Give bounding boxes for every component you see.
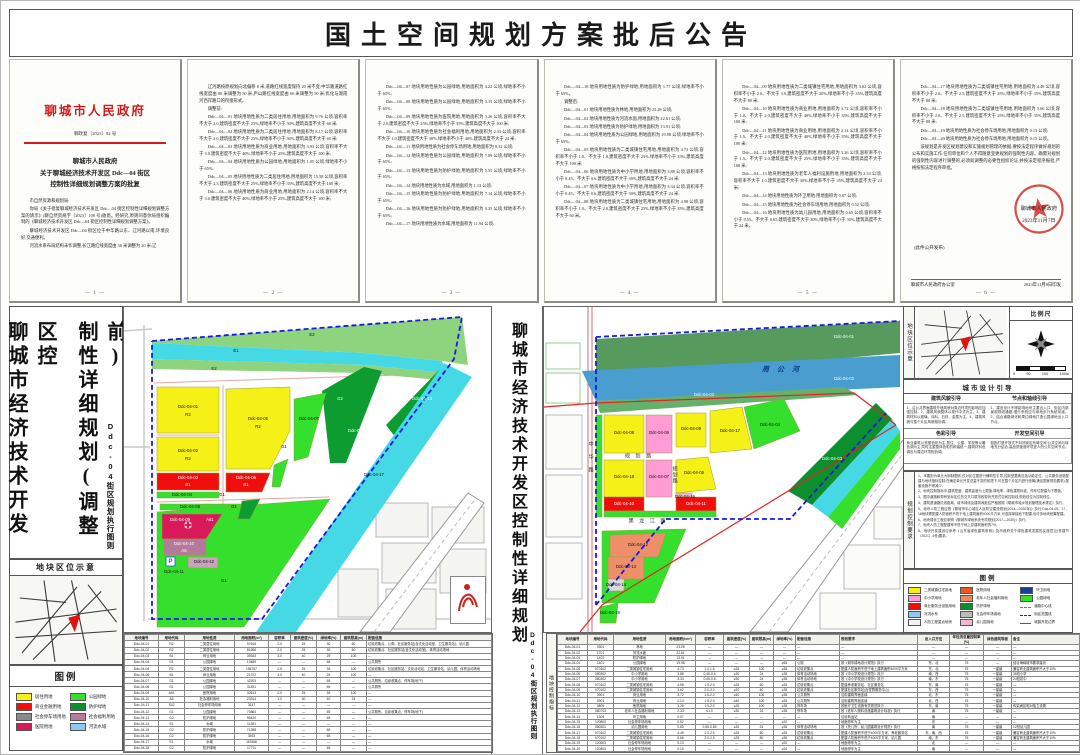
- table-row: Ddc-04-18G2防护绿地17711——65——: [125, 745, 492, 751]
- legend-swatch: [908, 595, 921, 602]
- doc-paragraph: Ddc—04—12 地块用地性质为医院用地,用地面积为 3.26 公顷,容积率不…: [734, 150, 882, 170]
- legend-swatch: [70, 693, 86, 701]
- letterhead-rule: [24, 142, 166, 144]
- scale-tick-label: 0: [1013, 372, 1015, 376]
- legend-label: 公园绿地: [89, 694, 107, 700]
- parcel-table-after: 地块控制指标 地块编号用地代码用地性质用地面积(hm²)容积率建筑密度(%)建筑…: [546, 633, 1080, 753]
- control-requirements-label: 规划控制要求: [904, 472, 915, 568]
- doc-paragraph: Ddc—04—15 地块用地性质为防护绿地,用地面积为 7.14 公顷,绿地率不…: [377, 191, 525, 205]
- legend-swatch: [960, 603, 973, 610]
- doc-paragraph: 河流水系布局结构未作调整,长江路红线宽度由 36 米调整为 20 米;辽: [21, 243, 169, 250]
- announcement-poster: 国土空间规划方案批后公告 聊城市人民政府 聊政复〔2023〕82 号 聊城市人民…: [0, 0, 1080, 755]
- map-title-before-col1: 聊城市经济技术开发区控: [2, 321, 60, 558]
- right-legend-box: 图例 二类城镇住宅用地 医院用地 环卫用地: [903, 569, 1073, 633]
- doc-paragraph: 聊城经济技术开发区 Ddc—04 街区位于中华路以东、辽河路以南,环境良好,交通…: [21, 228, 169, 242]
- document-pages: 聊城市人民政府 聊政复〔2023〕82 号 聊城市人民政府 关于聊城经济技术开发…: [9, 59, 1073, 303]
- control-requirements-box: 规划控制要求 1、本图则为单元大纲制图则,仅对区位图进行辅助性引导,控制型要素包…: [903, 471, 1073, 569]
- legend-swatch: [1020, 607, 1031, 608]
- design-section-title: 建筑风貌引导: [904, 394, 988, 404]
- legend-swatch: [908, 619, 921, 626]
- legend-item: 社会停车场用地: [960, 611, 1018, 618]
- design-section-title: 开发空间引导: [988, 429, 1071, 439]
- legend-item: 公园绿地: [70, 693, 116, 701]
- scale-bar: [1016, 366, 1066, 371]
- control-requirement-item: 2、地块控制指标中,建筑密度、建筑高度为上限值,绿地率、绿色建筑标准、停车位配建…: [918, 489, 1069, 494]
- legend-label: 社会停车场用地: [976, 612, 1001, 617]
- zoning-map-before-drawing: [124, 307, 492, 632]
- page-number: — 3 —: [366, 291, 536, 296]
- doc-paragraph: 调整前:: [199, 106, 347, 113]
- doc-paragraph: Ddc—04—08 地块用地性质为二类城镇住宅用地,用地面积为 4.98 公顷,…: [556, 199, 704, 219]
- table-cell: —: [367, 745, 492, 751]
- table-cell: 南: [918, 746, 950, 752]
- doc-number: 聊政复〔2023〕82 号: [21, 131, 169, 137]
- design-section-title: 节点和轴线引导: [988, 394, 1071, 404]
- table-cell: 17711: [235, 745, 269, 751]
- doc-body: 辽河路按原规划向北偏移 8 米,道路红线宽度保持 20 米不变;中华路道路红线宽…: [199, 84, 347, 203]
- doc-paragraph: Ddc—04—19 地块用地性质为社会停车场用地,用地面积为 0.13 公顷;: [912, 128, 1060, 135]
- doc-paragraph: 你局《关于批复聊城经济技术开发区 Ddc—04 街区控制性详细规划调整方案的请示…: [21, 206, 169, 226]
- table-cell: —: [984, 746, 1012, 752]
- doc-paragraph: Ddc—04—06 地块用地性质为商业用地,用地面积为 2.14 公顷,容积率不…: [199, 189, 347, 203]
- legend-item: 中小学用地: [908, 595, 958, 602]
- legend-item: 医院用地: [960, 587, 1018, 594]
- legend-label: 防护绿地: [976, 604, 990, 609]
- left-locator-box: 地块区位示意: [9, 559, 123, 665]
- right-locator-box: 地块区位示意 比例尺 050100150m: [903, 306, 1073, 379]
- legend-label: 人防工程重点地块: [924, 620, 952, 625]
- table-cell: 社会停车场用地: [614, 746, 666, 752]
- doc-paragraph: Ddc—04—07 地块用地性质为公园绿地,用地面积为 4.22 公顷,绿地率不…: [377, 84, 525, 98]
- legend-swatch: [960, 611, 973, 618]
- legend-label: 居住用地: [35, 694, 53, 700]
- legend-item: 防护绿地: [960, 603, 1018, 610]
- design-section-body: 鼓励打造开放式不封闭街区布局空间,公共空间与绿地充分结合,高品质营造环境宜人的公…: [988, 439, 1071, 452]
- doc-paragraph: Ddc—04—18 地块用地性质为二类城镇住宅用地,用地面积为 5.66 公顷,…: [912, 106, 1060, 126]
- doc-paragraph: 辽河路按原规划向北偏移 8 米,道路红线宽度保持 20 米不变;中华路道路红线宽…: [199, 84, 347, 104]
- design-section: 节点和轴线引导 1、建设设计不得影响地块主要出入口、街区内部景观视线通廊,慢行系…: [988, 394, 1072, 429]
- table-row: 地块编号用地代码用地性质用地面积(hm²)容积率建筑密度(%)建筑限高(m)绿地…: [558, 635, 1080, 645]
- table-cell: 配建人防面积不低于4000平方米、养老服务站: [840, 730, 918, 735]
- legend-swatch: [16, 723, 32, 731]
- table-cell: 出入口方位: [918, 635, 950, 645]
- legend-item: 居住用地: [16, 693, 66, 701]
- doc-paragraph: Ddc—04—11 地块用地性质为社会停车场用地,用地面积为 0.32 公顷;: [377, 144, 525, 151]
- doc-paragraph: Ddc—04—16 地块用地性质为幼儿园用地,用地面积为 0.65 公顷,容积率…: [734, 210, 882, 230]
- control-requirement-item: 6、地块绿化工程应参照《聊城市绿地系统专项规划(2017—2030)》执行。: [918, 518, 1069, 523]
- left-legend-box: 图例 居住用地 公园绿地 商业金融用地: [9, 665, 123, 751]
- locator-minimap: [915, 307, 1010, 378]
- doc-page-3: Ddc—04—07 地块用地性质为公园绿地,用地面积为 4.22 公顷,绿地率不…: [365, 59, 538, 303]
- legend-swatch: [960, 595, 973, 602]
- doc-body: Ddc—04—07 地块用地性质为公园绿地,用地面积为 4.22 公顷,绿地率不…: [377, 84, 525, 228]
- legend-label: 社会停车场用地: [35, 714, 66, 720]
- legend-item: 二类城镇住宅用地: [908, 587, 958, 594]
- control-requirement-item: 4、建筑退道路红线距离、城市绿线及建筑间距应严格按照《聊城市城乡规划管理技术规定…: [918, 501, 1069, 506]
- legend-item: 商业服务业设施用地: [908, 603, 958, 610]
- doc-paragraph: Ddc—04—17 地块用地性质为二类城镇住宅用地,用地面积为 4.49 公顷,…: [912, 84, 1060, 104]
- table-cell: 120803: [588, 746, 614, 752]
- doc-paragraph: Ddc—04—02 地块用地性质为河流水面,用地面积为 22.61 公顷;: [556, 116, 704, 123]
- legend-swatch: [908, 611, 921, 618]
- doc-paragraph: Ddc—04—13 地块用地性质为老年人福利设施用地,用地面积为 2.33 公顷…: [734, 171, 882, 191]
- control-requirement-item: 7、地块人防工程配建率不低于地上总建筑面积的7%。: [918, 523, 1069, 528]
- map-emblem: [450, 576, 486, 624]
- page-number: — 4 —: [545, 291, 715, 296]
- legend-label: 环卫用地: [1036, 588, 1050, 593]
- legend-swatch: [1020, 587, 1033, 594]
- design-sections: 建筑风貌引导 1、沿公共界面建筑外墙风貌对周边环境的影响应加强控制。2、建筑风貌…: [904, 394, 1072, 464]
- scale-labels: 050100150m: [1013, 372, 1069, 376]
- table-cell: 容积率: [696, 635, 724, 645]
- doc-paragraph: Ddc—04—06 地块用地性质为中小学用地,用地面积为 3.88 公顷,容积率…: [556, 169, 704, 183]
- table-cell: 建筑密度(%): [724, 635, 750, 645]
- scale-tick-label: 150m: [1060, 372, 1070, 376]
- legend-label: 城镇开发边界: [1034, 620, 1055, 625]
- legend-item: 社会停车场用地: [16, 713, 66, 721]
- legend-item: 幼儿园用地: [960, 619, 1018, 626]
- table-cell: 防护绿地: [185, 745, 235, 751]
- map-title-before-col2: 制性详细规划(调整前): [72, 321, 130, 558]
- legend-swatch: [16, 703, 32, 711]
- legend-label: 中小学用地: [924, 596, 942, 601]
- table-cell: 绿地率(%): [774, 635, 796, 645]
- doc-body: Ddc—04—17 地块用地性质为二类城镇住宅用地,用地面积为 4.49 公顷,…: [912, 84, 1060, 171]
- table-cell: —: [950, 746, 984, 752]
- design-section-body: 1、建设设计不得影响地块主要出入口、街区内部景观视线通廊,慢行系统应与绿地步行系…: [988, 404, 1071, 427]
- table-cell: 地面停车为主: [840, 746, 918, 752]
- legend-swatch: [908, 603, 921, 610]
- table-cell: 用地面积(hm²): [666, 635, 696, 645]
- doc-paragraph: Ddc—04—03 地块用地性质为商业用地,用地面积为 3.93 公顷,容积率不…: [199, 144, 347, 158]
- legend-label: 河流水系: [924, 612, 938, 617]
- legend-title: 图例: [10, 666, 122, 687]
- page-number: — 6 —: [901, 291, 1071, 296]
- scale-tick-label: 50: [1026, 372, 1030, 376]
- signature-block: 聊城市人民政府 2023年11月7日: [1021, 204, 1057, 227]
- doc-page-6: Ddc—04—17 地块用地性质为二类城镇住宅用地,用地面积为 4.49 公顷,…: [900, 59, 1073, 303]
- map-subtitle-after: Ddc-04街区规划执行图则: [527, 632, 537, 740]
- legend-item: 公园绿地: [1020, 595, 1068, 602]
- legend-label: 二类城镇住宅用地: [924, 588, 952, 593]
- doc-page-1: 聊城市人民政府 聊政复〔2023〕82 号 聊城市人民政府 关于聊城经济技术开发…: [9, 59, 182, 303]
- legend-label: 河流水域: [89, 724, 107, 730]
- locator-minimap: [10, 576, 122, 664]
- legend-item: 社会福利用地: [70, 713, 116, 721]
- doc-paragraph: 市自然资源和规划局:: [21, 198, 169, 205]
- table-cell: —: [291, 745, 317, 751]
- table-cell: —: [696, 746, 724, 752]
- table-cell: 用地代码: [588, 635, 614, 645]
- doc-paragraph: Ddc—04—09 地块用地性质为二类城镇住宅用地,用地面积为 3.62 公顷,…: [734, 84, 882, 104]
- legend-swatch: [1020, 623, 1031, 624]
- agency-letterhead: 聊城市人民政府: [21, 100, 169, 119]
- page-number: — 2 —: [188, 291, 358, 296]
- table-cell: 规划要求: [840, 635, 918, 645]
- legend-items: 二类城镇住宅用地 医院用地 环卫用地 中小学用地: [904, 584, 1072, 629]
- legend-swatch: [16, 713, 32, 721]
- legend-swatch: [1020, 595, 1033, 602]
- control-requirements-list: 1、本图则为单元大纲制图则,仅对区位图进行辅助性引导,控制型要素包括功能定位、公…: [915, 472, 1072, 568]
- legend-swatch: [1020, 615, 1031, 616]
- doc-paragraph: Ddc—04—17 地块用地性质为水域,用地面积为 11.94 公顷;: [377, 221, 525, 228]
- legend-label: 社会福利用地: [89, 714, 115, 720]
- doc-body: Ddc—04—09 地块用地性质为二类城镇住宅用地,用地面积为 3.62 公顷,…: [734, 84, 882, 230]
- control-requirement-item: 1、本图则为单元大纲制图则,仅对区位图进行辅助性引导,控制型要素包括功能定位、公…: [918, 474, 1069, 488]
- table-cell: 年径流总量控制率(%): [950, 635, 984, 645]
- legend-swatch: [70, 723, 86, 731]
- page-title: 国土空间规划方案批后公告: [325, 15, 757, 52]
- map-subtitle-before: Ddc-04街区规划执行图则: [105, 422, 116, 550]
- legend-swatch: [960, 619, 973, 626]
- table-cell: —: [341, 745, 367, 751]
- map-title-after: 聊城市经济技术开发区控制性详细规划: [505, 322, 529, 754]
- legend-label: 医院用地: [35, 724, 53, 730]
- compass-rose-icon: [1010, 321, 1072, 366]
- doc-paragraph: Ddc—04—14 地块用地性质为水域,用地面积为 1.13 公顷;: [377, 183, 525, 190]
- doc-paragraph: Ddc—04—03 地块用地性质为防护绿地,用地面积为 13.91 公顷;: [556, 124, 704, 131]
- legend-item: 街区范围线: [1020, 611, 1068, 618]
- table-cell: Ddc-04-20: [558, 746, 588, 752]
- doc-body: Ddc—04—18 地块用地性质为防护绿地,用地面积为 1.77 公顷,绿地率不…: [556, 84, 704, 220]
- doc-paragraph: Ddc—04—10 地块用地性质为商业用地,用地面积为 3.72 公顷,容积率不…: [734, 106, 882, 126]
- legend-swatch: [70, 713, 86, 721]
- legend-item: 河流水系: [908, 611, 958, 618]
- table-cell: —: [796, 746, 840, 752]
- scale-box: 比例尺 050100150m: [1010, 307, 1072, 378]
- publish-note: (此件公开发布): [914, 245, 945, 251]
- legend-label: 医院用地: [976, 588, 990, 593]
- control-requirement-item: 8、地块开发建设应参考《山东省绿色建筑条例》及市政府关于绿色建筑发展的实施意见(…: [918, 529, 1069, 539]
- doc-paragraph: Ddc—04—01 地块用地性质为林地,用地面积为 23.28 公顷;: [556, 107, 704, 114]
- doc-paragraph: Ddc—04—15 地块用地性质为社会停车场用地,用地面积为 0.52 公顷;: [734, 202, 882, 209]
- doc-paragraph: Ddc—04—18 地块用地性质为防护绿地,用地面积为 1.77 公顷,绿地率不…: [556, 84, 704, 98]
- legend-item: 商业金融用地: [16, 703, 66, 711]
- legend-label: 道路中心线: [1034, 604, 1052, 609]
- scale-tick-label: 100: [1042, 372, 1048, 376]
- design-section-title: 色彩引导: [904, 429, 988, 439]
- doc-page-5: Ddc—04—09 地块用地性质为二类城镇住宅用地,用地面积为 3.62 公顷,…: [722, 59, 895, 303]
- doc-paragraph: Ddc—04—08 地块用地性质为公园绿地,用地面积为 3.15 公顷,绿地率不…: [377, 99, 525, 113]
- legend-label: 公园绿地: [1036, 596, 1050, 601]
- table-cell: 用地性质: [614, 635, 666, 645]
- design-section-body: 商业建筑以亮丽色彩为主,居住、公建、学校等以暖色调为主,同时注重整体色彩的和谐统…: [904, 439, 988, 457]
- zoning-map-after: Ddc-04-01周 公 河Ddc-04-02Ddc-04-03Ddc-04-0…: [543, 306, 905, 633]
- doc-footer: 聊城市人民政府办公室 2023年11月8日印发: [911, 279, 1061, 289]
- table-cell: —: [724, 746, 750, 752]
- table-cell: —: [1012, 746, 1080, 752]
- legend-item: 医院用地: [16, 723, 66, 731]
- legend-item: 环卫用地: [1020, 587, 1068, 594]
- doc-paragraph: Ddc—04—09 地块用地性质为医院用地,用地面积为 3.26 公顷,容积率不…: [377, 114, 525, 128]
- table-cell: 配套设施: [796, 635, 840, 645]
- center-title-strip: 聊城市经济技术开发区控制性详细规划 Ddc-04街区规划执行图则: [491, 306, 543, 754]
- legend-items: 居住用地 公园绿地 商业金融用地 防护绿地: [10, 687, 122, 737]
- doc-title: 聊城市人民政府 关于聊城经济技术开发区 Ddc—04 街区 控制性详细规划调整方…: [21, 156, 169, 191]
- table-cell: Ddc-04-18: [125, 745, 159, 751]
- legend-label: 老年人社会福利用地: [976, 596, 1008, 601]
- doc-paragraph: Ddc—04—01 地块用地性质为二类居住用地,用地面积为 9.76 公顷,容积…: [199, 114, 347, 128]
- doc-paragraph: 调整后:: [556, 99, 704, 106]
- legend-label: 防护绿地: [89, 704, 107, 710]
- legend-title: 图例: [904, 570, 1072, 584]
- scale-title: 比例尺: [1010, 307, 1072, 321]
- doc-paragraph: Ddc—04—05 地块用地性质为二类居住用地,用地面积为 15.58 公顷,容…: [199, 174, 347, 188]
- table-cell: 65: [317, 745, 341, 751]
- legend-swatch: [908, 587, 921, 594]
- doc-paragraph: Ddc—04—13 地块用地性质为防护绿地,用地面积为 5.55 公顷,绿地率不…: [377, 168, 525, 182]
- doc-page-4: Ddc—04—18 地块用地性质为防护绿地,用地面积为 1.77 公顷,绿地率不…: [544, 59, 717, 303]
- table-cell: 0.15: [666, 746, 696, 752]
- design-guidance-box: 城市设计引导 建筑风貌引导 1、沿公共界面建筑外墙风貌对周边环境的影响应加强控制…: [903, 379, 1073, 471]
- doc-paragraph: Ddc—04—05 地块用地性质为二类城镇住宅用地,用地面积为 4.73 公顷,…: [556, 147, 704, 167]
- parcel-table-after-grid: 地块编号用地代码用地性质用地面积(hm²)容积率建筑密度(%)建筑限高(m)绿地…: [557, 634, 1080, 752]
- doc-page-2: 辽河路按原规划向北偏移 8 米,道路红线宽度保持 20 米不变;中华路道路红线宽…: [187, 59, 360, 303]
- zoning-map-before: E2E1E2Ddc-04-01R2Ddc-04-05R2Ddc-04-07G2D…: [123, 306, 493, 633]
- left-title-block: 聊城市经济技术开发区控 制性详细规划(调整前) Ddc-04街区规划执行图则: [9, 306, 123, 559]
- table-cell: 建筑限高(m): [750, 635, 774, 645]
- legend-label: 商业服务业设施用地: [924, 604, 956, 609]
- table-cell: —: [269, 745, 291, 751]
- doc-paragraph: Ddc—04—11 地块用地性质为商业用地,用地面积为 2.14 公顷,容积率不…: [734, 128, 882, 148]
- table-cell: —: [750, 746, 774, 752]
- legend-item: 城镇开发边界: [1020, 619, 1068, 626]
- locator-label: 地块区位示意: [904, 307, 915, 378]
- doc-paragraph: Ddc—04—02 地块用地性质为二类居住用地,用地面积为 8.17 公顷,容积…: [199, 129, 347, 143]
- table-cell: G2: [159, 745, 185, 751]
- page-number: — 5 —: [723, 291, 893, 296]
- table-cell: 备注: [1012, 635, 1080, 645]
- legend-item: 河流水域: [70, 723, 116, 731]
- parcel-table-after-label: 地块控制指标: [547, 634, 557, 752]
- doc-paragraph: Ddc—04—04 地块用地性质为公园绿地,用地面积为 19.98 公顷,绿地率…: [556, 132, 704, 146]
- doc-paragraph: Ddc—04—12 地块用地性质为公园绿地,用地面积为 7.09 公顷,绿地率不…: [377, 153, 525, 167]
- table-cell: 绿色建筑等级: [984, 635, 1012, 645]
- legend-swatch: [70, 703, 86, 711]
- doc-body: 市自然资源和规划局:你局《关于批复聊城经济技术开发区 Ddc—04 街区控制性详…: [21, 198, 169, 250]
- doc-paragraph: Ddc—04—07 地块用地性质为中小学用地,用地面积为 3.34 公顷,容积率…: [556, 184, 704, 198]
- doc-paragraph: Ddc—04—16 地块用地性质为防护绿地,用地面积为 0.35 公顷,绿地率不…: [377, 206, 525, 220]
- legend-item: 防护绿地: [70, 703, 116, 711]
- legend-swatch: [960, 587, 973, 594]
- doc-paragraph: Ddc—04—14 地块用地性质为环卫用地,用地面积为 0.07 公顷;: [734, 193, 882, 200]
- control-requirement-item: 3、图中道路和带有坐标定位的交叉口属市政带状开放式空间控制线,规划线位为控制线位…: [918, 495, 1069, 500]
- table-cell: ≥20: [774, 746, 796, 752]
- legend-item: 道路中心线: [1020, 603, 1068, 610]
- legend-item: 老年人社会福利用地: [960, 595, 1018, 602]
- table-cell: 地块编号: [558, 635, 588, 645]
- locator-title: 地块区位示意: [10, 560, 122, 576]
- table-cell: 配建人防面积不低于地上建筑面积4000平方米: [840, 666, 918, 671]
- design-section: 建筑风貌引导 1、沿公共界面建筑外墙风貌对周边环境的影响应加强控制。2、建筑风貌…: [904, 394, 988, 429]
- legend-label: 街区范围线: [1034, 612, 1052, 617]
- doc-paragraph: Ddc—04—20 地块用地性质为社会停车场用地,用地面积为 0.15 公顷。: [912, 136, 1060, 143]
- legend-label: 商业金融用地: [35, 704, 61, 710]
- banner: 国土空间规划方案批后公告: [9, 9, 1073, 57]
- table-row: Ddc-04-20120803社会停车场用地0.15———≥20—地面停车为主南…: [558, 746, 1080, 752]
- page-number: — 1 —: [10, 291, 180, 296]
- doc-paragraph: Ddc—04—04 地块用地性质为公园绿地,用地面积为 1.05 公顷,绿地率不…: [199, 159, 347, 173]
- design-guidance-title: 城市设计引导: [904, 380, 1072, 394]
- legend-swatch: [16, 693, 32, 701]
- legend-label: 幼儿园用地: [976, 620, 994, 625]
- design-section-body: 1、沿公共界面建筑外墙风貌对周边环境的影响应加强控制。2、建筑风貌整体以现代中式…: [904, 404, 988, 427]
- control-requirement-item: 5、地块人防工程应按《聊城市中心城区人民防空建设规划(2014—2030年)》执…: [918, 507, 1069, 517]
- parcel-table-before: 地块编号用地代码用地性质用地面积(m²)容积率建筑密度(%)绿地率(%)建筑限高…: [123, 633, 493, 753]
- design-section: 色彩引导 商业建筑以亮丽色彩为主,居住、公建、学校等以暖色调为主,同时注重整体色…: [904, 429, 988, 464]
- doc-paragraph: Ddc—04—10 地块用地性质为社会福利用地,用地面积为 2.33 公顷,容积…: [377, 129, 525, 143]
- design-section: 开发空间引导 鼓励打造开放式不封闭街区布局空间,公共空间与绿地充分结合,高品质营…: [988, 429, 1072, 464]
- doc-paragraph: 该规划是开发区规划建设和实施规划管理的依据,要按法定程序做好规划的公布和实施工作…: [912, 144, 1060, 171]
- parcel-table-before-grid: 地块编号用地代码用地性质用地面积(m²)容积率建筑密度(%)绿地率(%)建筑限高…: [124, 634, 492, 752]
- zoning-map-after-drawing: [544, 307, 904, 632]
- legend-item: 人防工程重点地块: [908, 619, 958, 626]
